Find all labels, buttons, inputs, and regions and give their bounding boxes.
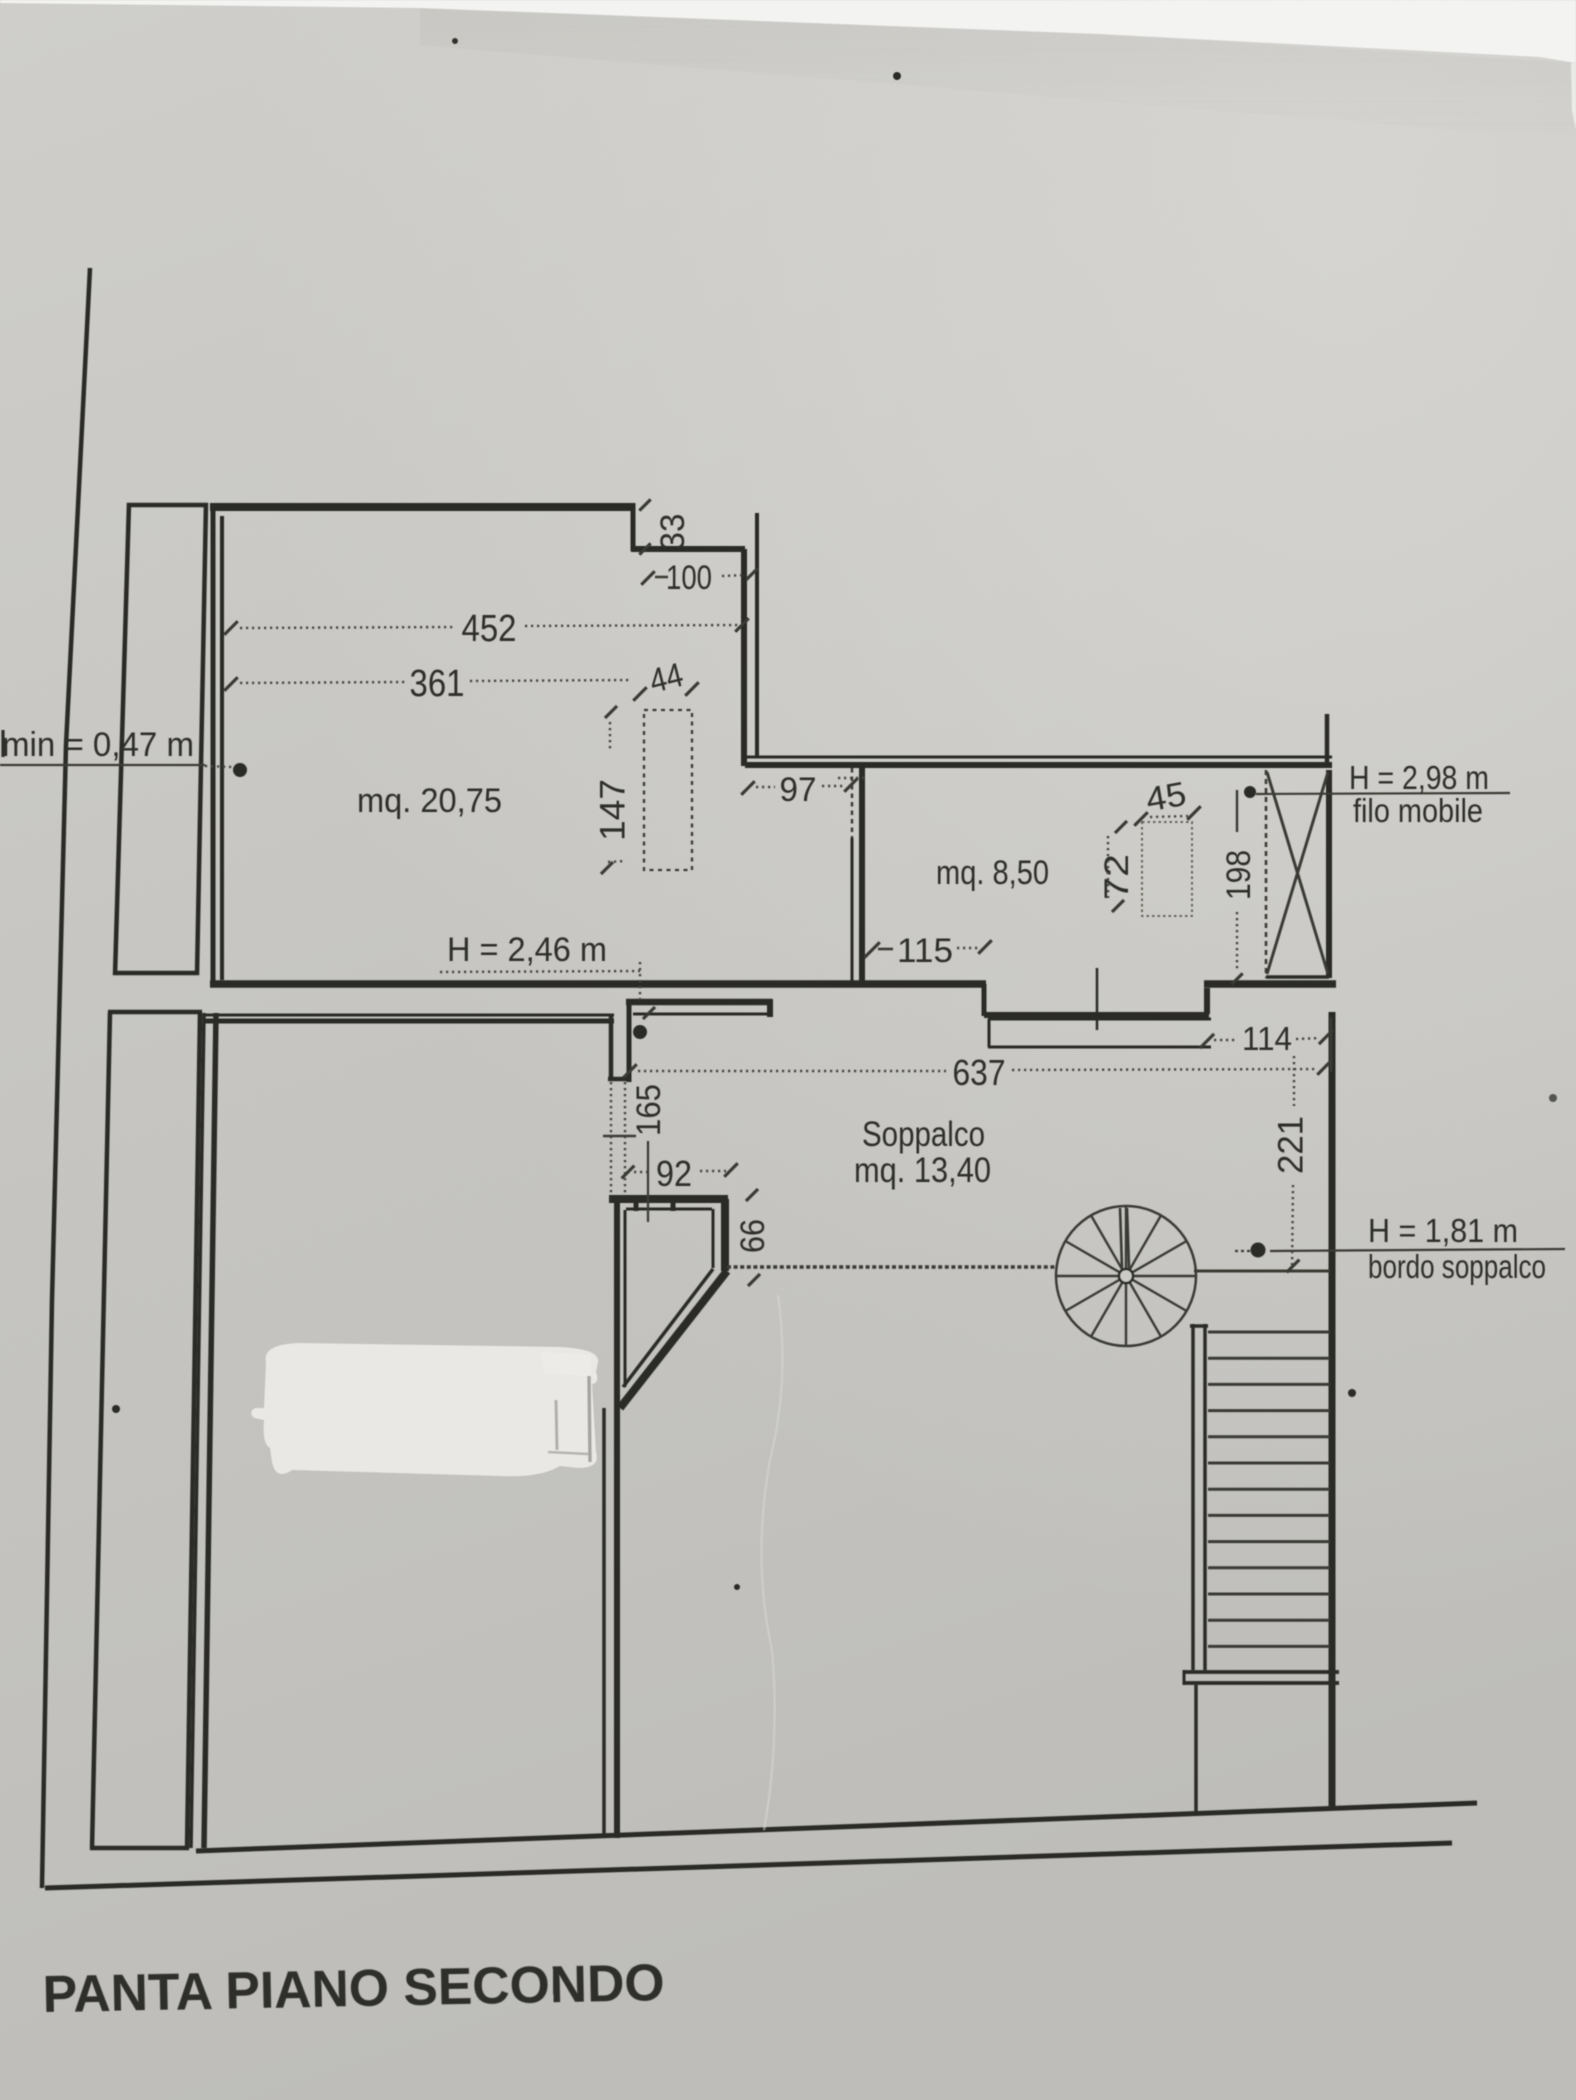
svg-text:PANTA PIANO SECONDO: PANTA PIANO SECONDO <box>42 1954 665 2024</box>
svg-text:361: 361 <box>410 663 465 705</box>
svg-text:mq. 13,40: mq. 13,40 <box>854 1151 991 1190</box>
svg-text:92: 92 <box>656 1153 692 1194</box>
svg-text:45: 45 <box>1143 775 1189 819</box>
svg-text:mq. 20,75: mq. 20,75 <box>357 782 502 820</box>
svg-text:115: 115 <box>897 932 953 970</box>
svg-text:H = 2,46 m: H = 2,46 m <box>447 931 607 969</box>
svg-text:147: 147 <box>594 779 633 841</box>
svg-text:221: 221 <box>1272 1116 1311 1174</box>
svg-text:bordo soppalco: bordo soppalco <box>1368 1248 1546 1285</box>
svg-text:filo mobile: filo mobile <box>1353 792 1483 829</box>
svg-text:min = 0,47 m: min = 0,47 m <box>2 726 194 764</box>
svg-text:198: 198 <box>1220 850 1258 900</box>
svg-text:mq. 8,50: mq. 8,50 <box>936 854 1049 892</box>
svg-text:165: 165 <box>630 1084 668 1136</box>
svg-text:H = 2,98 m: H = 2,98 m <box>1349 759 1489 796</box>
svg-text:97: 97 <box>780 771 817 809</box>
svg-text:114: 114 <box>1242 1020 1292 1057</box>
svg-text:66: 66 <box>734 1219 772 1253</box>
svg-text:Soppalco: Soppalco <box>862 1115 985 1154</box>
svg-text:452: 452 <box>462 608 517 650</box>
svg-text:33: 33 <box>654 514 692 551</box>
svg-text:H = 1,81 m: H = 1,81 m <box>1368 1212 1518 1249</box>
svg-text:72: 72 <box>1098 854 1136 900</box>
svg-text:637: 637 <box>953 1052 1006 1093</box>
svg-text:100: 100 <box>666 559 712 597</box>
